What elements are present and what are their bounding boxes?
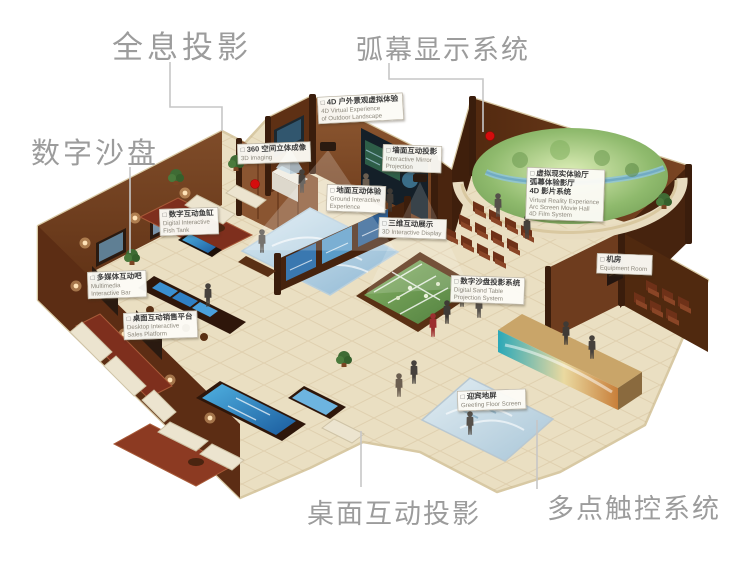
checkbox-icon: □ — [162, 211, 166, 219]
callout-multimedia-bar: □多媒体互动吧 Multimedia Interactive Bar — [87, 270, 147, 299]
callout-digital-fish-tank: □数字互动鱼缸 Digital Interactive Fish Tank — [159, 207, 219, 236]
checkbox-icon: □ — [330, 187, 334, 195]
callout-subtitle: Projection System — [454, 293, 520, 302]
checkbox-icon: □ — [240, 146, 244, 154]
label-holographic-projection: 全息投影 — [112, 22, 252, 67]
callout-ground-interactive: □地面互动体验 Ground Interactive Experience — [326, 184, 386, 213]
red-marker-dot — [486, 132, 495, 141]
callout-4d-outdoor-vr: □4D 户外景观虚拟体验 4D Virtual Experience of Ou… — [317, 93, 404, 125]
callout-subtitle: Fish Tank — [163, 225, 214, 234]
callout-subtitle: Equipment Room — [600, 264, 648, 273]
checkbox-icon: □ — [530, 170, 534, 178]
callout-title: 桌面互动销售平台 — [133, 313, 193, 323]
checkbox-icon: □ — [460, 393, 464, 401]
callout-greeting-floor-screen: □迎宾地屏 Greeting Floor Screen — [457, 389, 526, 411]
callout-subtitle: 3D Interactive Display — [382, 228, 442, 237]
callout-subtitle: 3D Imaging — [241, 153, 307, 162]
label-digital-sand-table: 数字沙盘 — [31, 130, 159, 172]
callout-title: 迎宾地屏 — [467, 392, 497, 401]
callout-desktop-sales-platform: □桌面互动销售平台 Desktop Interactive Sales Plat… — [123, 310, 198, 340]
callout-title: 多媒体互动吧 — [97, 272, 142, 282]
checkbox-icon: □ — [386, 147, 390, 155]
label-desktop-interactive-projection: 桌面互动投影 — [307, 492, 481, 531]
checkbox-icon: □ — [600, 256, 604, 264]
callout-equipment-room: □机房 Equipment Room — [596, 253, 652, 275]
callout-vr-arc-screen-4d: □虚拟现实体验厅 弧幕体验影厅 4D 影片系统 Virtual Reality … — [525, 167, 605, 222]
checkbox-icon: □ — [321, 99, 326, 107]
checkbox-icon: □ — [454, 278, 458, 286]
callout-subtitle: Greeting Floor Screen — [461, 400, 521, 409]
callout-sand-table-projection: □数字沙盘投影系统 Digital Sand Table Projection … — [450, 275, 525, 305]
callout-wall-interactive-projection: □墙面互动投影 Interactive Mirror Projection — [382, 144, 442, 173]
label-multitouch-system: 多点触控系统 — [547, 487, 721, 526]
callout-title: 360 空间立体成像 — [247, 144, 307, 154]
exhibition-hall-rendering: 全息投影 弧幕显示系统 数字沙盘 桌面互动投影 多点触控系统 □4D 户外景观虚… — [0, 0, 741, 563]
checkbox-icon: □ — [382, 220, 386, 228]
callout-subtitle: Sales Platform — [127, 329, 193, 338]
checkbox-icon: □ — [126, 315, 130, 323]
label-arc-screen-display: 弧幕显示系统 — [356, 28, 530, 67]
red-marker-dot — [251, 180, 260, 189]
checkbox-icon: □ — [90, 274, 94, 282]
callout-3d-interactive-display: □三维互动展示 3D Interactive Display — [378, 217, 446, 239]
callout-title: 机房 — [606, 255, 621, 264]
callout-subtitle: Interactive Bar — [91, 288, 142, 297]
callout-360-imaging: □360 空间立体成像 3D Imaging — [237, 141, 311, 164]
